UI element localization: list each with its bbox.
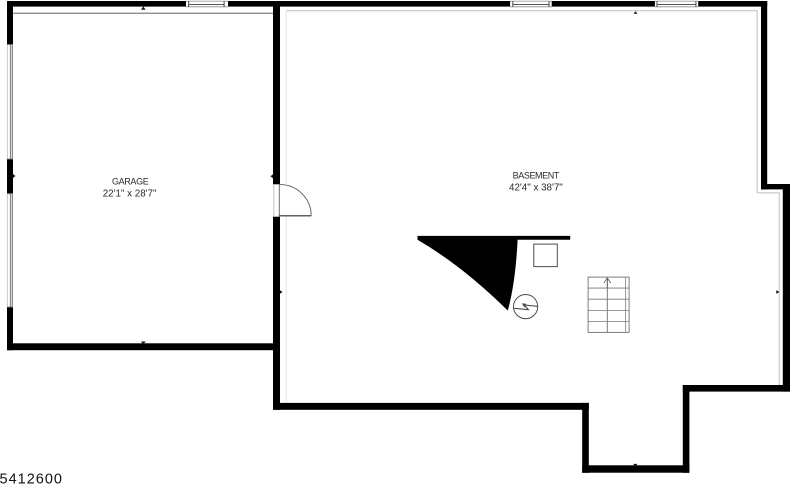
svg-text:BASEMENT: BASEMENT: [513, 170, 560, 180]
svg-text:42'4" x 38'7": 42'4" x 38'7": [509, 182, 563, 193]
svg-text:5412600: 5412600: [0, 472, 63, 487]
svg-text:22'1" x 28'7": 22'1" x 28'7": [103, 188, 157, 199]
svg-text:GARAGE: GARAGE: [112, 177, 149, 187]
